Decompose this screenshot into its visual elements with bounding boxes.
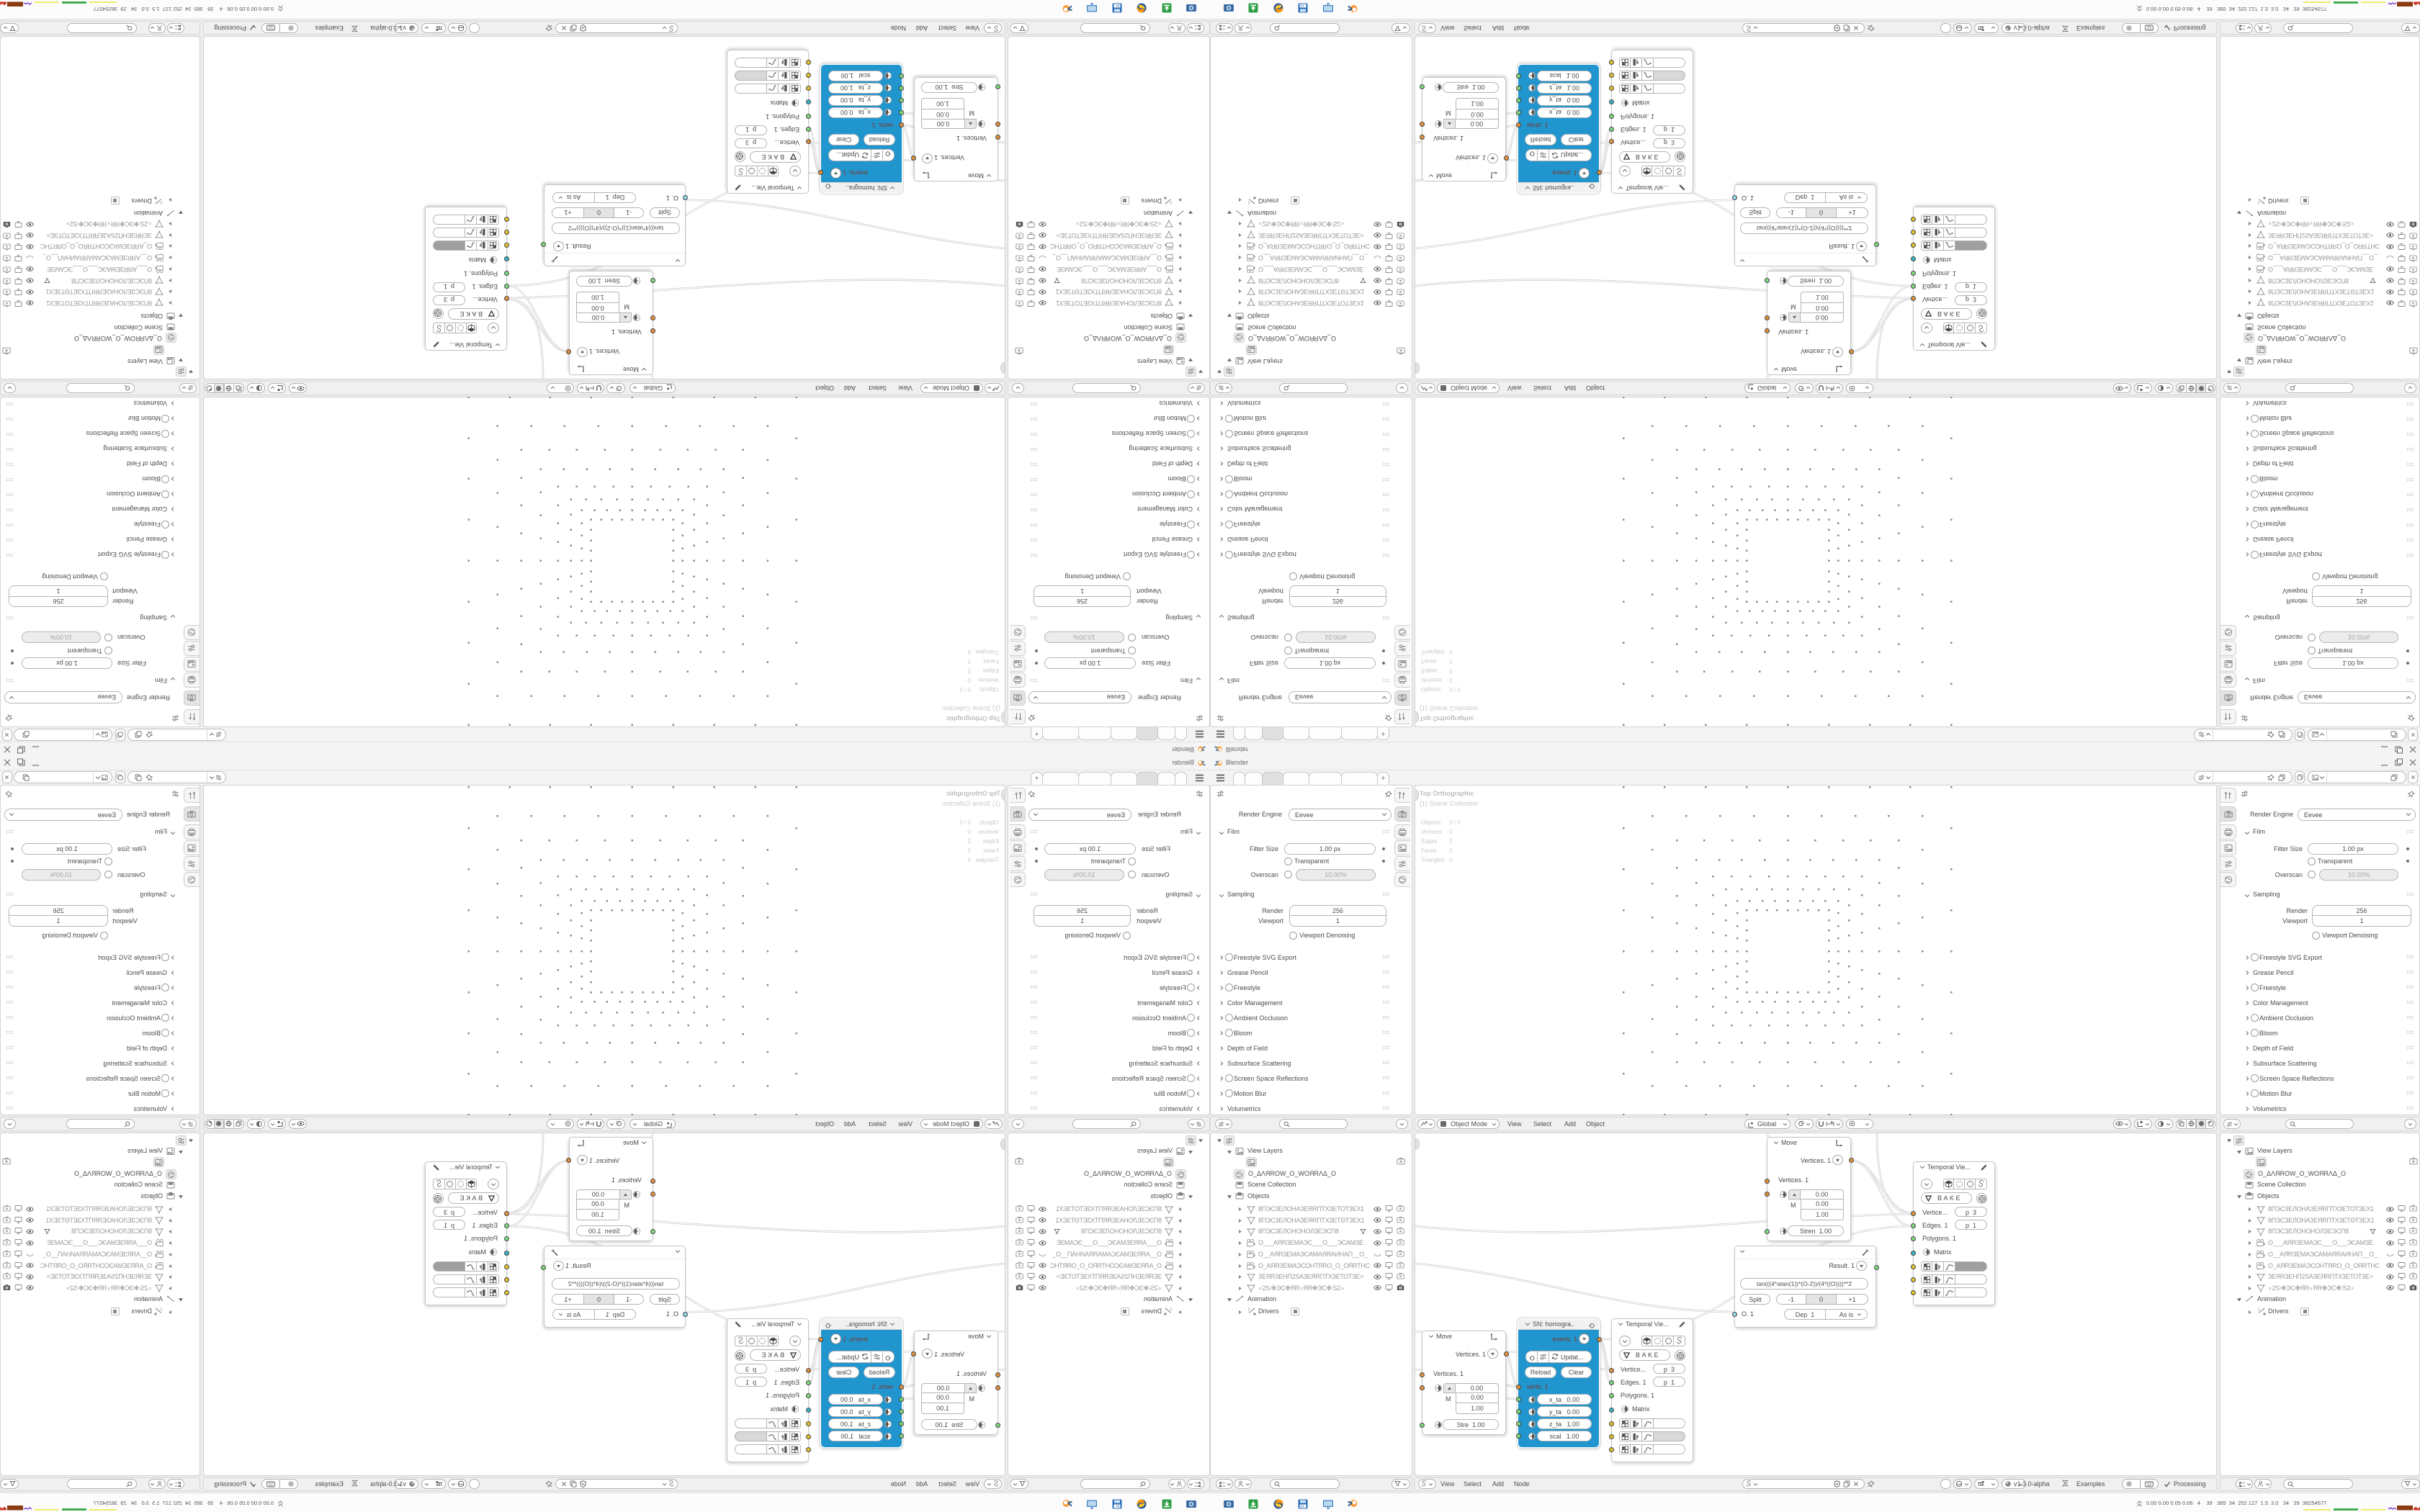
svg-text:64: 64 xyxy=(1301,4,1305,8)
svg-text:64: 64 xyxy=(1116,1504,1120,1508)
svg-text:64: 64 xyxy=(1116,4,1120,8)
svg-text:64: 64 xyxy=(1301,1504,1305,1508)
